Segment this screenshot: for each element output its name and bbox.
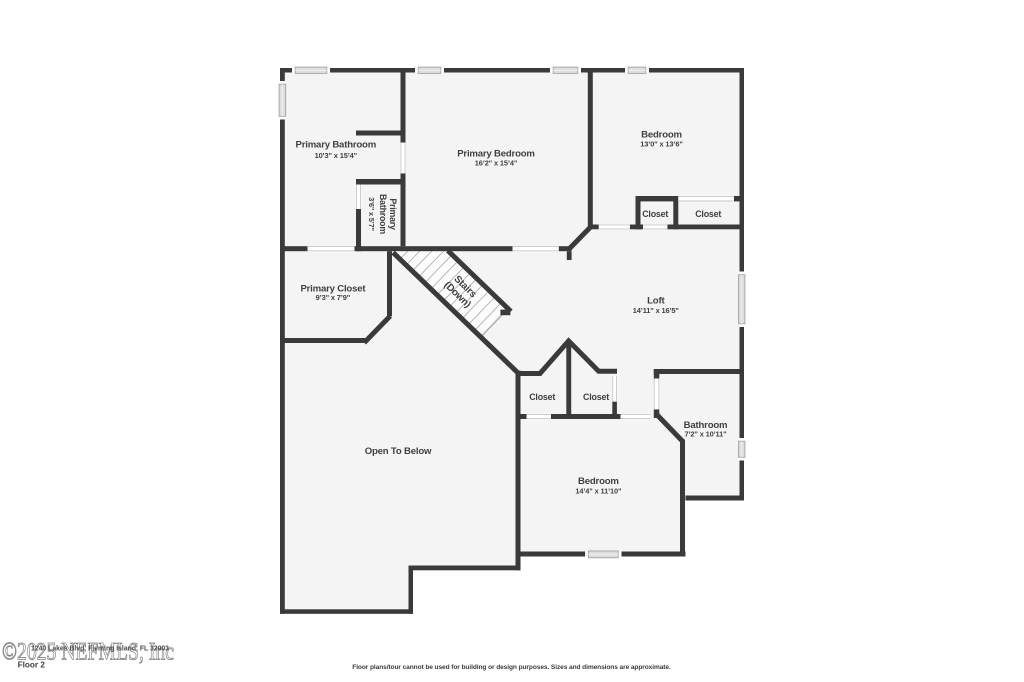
svg-text:Closet: Closet bbox=[695, 209, 721, 219]
svg-text:Primary: Primary bbox=[388, 198, 398, 230]
svg-text:Floor 2: Floor 2 bbox=[18, 661, 46, 670]
svg-text:1240 Lakes Blvd, Fleming Islan: 1240 Lakes Blvd, Fleming Island, FL 3200… bbox=[31, 644, 169, 653]
svg-text:Bathroom: Bathroom bbox=[378, 194, 388, 234]
svg-text:Open To Below: Open To Below bbox=[365, 446, 432, 457]
svg-text:Closet: Closet bbox=[529, 392, 555, 402]
svg-text:9’3" x 7’9": 9’3" x 7’9" bbox=[316, 293, 351, 302]
svg-text:14’4" x 11’10": 14’4" x 11’10" bbox=[575, 486, 622, 495]
svg-text:16’2" x 15’4": 16’2" x 15’4" bbox=[475, 158, 518, 167]
svg-text:Closet: Closet bbox=[642, 209, 668, 219]
svg-text:Floor plans/tour cannot be use: Floor plans/tour cannot be used for buil… bbox=[352, 664, 671, 671]
svg-text:14’11" x 16’5": 14’11" x 16’5" bbox=[633, 306, 680, 315]
svg-text:Loft: Loft bbox=[647, 295, 665, 306]
svg-text:Closet: Closet bbox=[583, 392, 609, 402]
svg-text:10’3" x 15’4": 10’3" x 15’4" bbox=[315, 151, 358, 160]
svg-text:7’2" x 10’11": 7’2" x 10’11" bbox=[684, 429, 727, 438]
svg-text:3’6" x 5’7": 3’6" x 5’7" bbox=[367, 197, 376, 230]
svg-text:Primary Bathroom: Primary Bathroom bbox=[296, 140, 377, 151]
svg-text:13’0" x 13’6": 13’0" x 13’6" bbox=[640, 140, 683, 149]
